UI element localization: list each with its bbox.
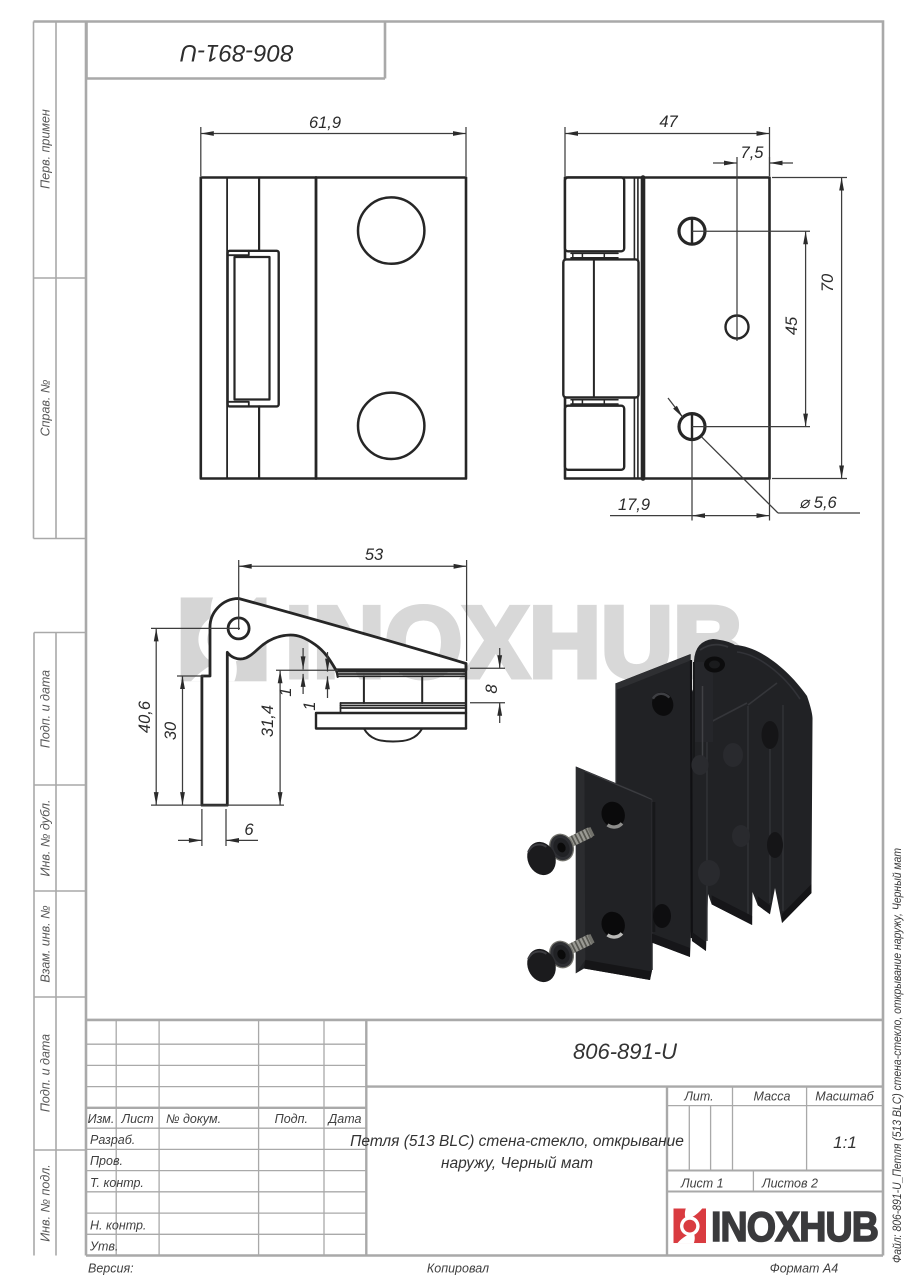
svg-text:47: 47 (659, 113, 678, 131)
svg-text:Масштаб: Масштаб (815, 1090, 874, 1104)
svg-text:8: 8 (483, 684, 501, 694)
svg-text:Инв. № дубл.: Инв. № дубл. (39, 800, 53, 877)
svg-text:1:1: 1:1 (833, 1133, 857, 1152)
svg-text:31,4: 31,4 (259, 705, 277, 737)
svg-text:Подп. и дата: Подп. и дата (39, 1034, 53, 1112)
svg-text:1: 1 (277, 687, 295, 696)
svg-text:Версия:: Версия: (88, 1262, 134, 1276)
svg-text:Справ. №: Справ. № (39, 379, 53, 436)
svg-text:806-891-U: 806-891-U (573, 1039, 677, 1064)
svg-text:Петля (513 BLC) стена-стекло,: Петля (513 BLC) стена-стекло, открывание (350, 1133, 684, 1150)
svg-text:40,6: 40,6 (136, 700, 154, 733)
svg-text:70: 70 (819, 273, 837, 292)
svg-text:Лист 1: Лист 1 (680, 1177, 724, 1191)
svg-text:Н. контр.: Н. контр. (90, 1219, 146, 1233)
svg-text:Т. контр.: Т. контр. (90, 1176, 144, 1190)
svg-text:Подп.: Подп. (275, 1112, 308, 1126)
svg-text:№ докум.: № докум. (166, 1112, 221, 1126)
svg-text:Листов 2: Листов 2 (761, 1177, 818, 1191)
svg-text:Перв. примен: Перв. примен (39, 109, 53, 189)
svg-text:Взам. инв. №: Взам. инв. № (39, 905, 53, 983)
svg-text:Пров.: Пров. (90, 1154, 123, 1168)
svg-text:7,5: 7,5 (741, 144, 765, 162)
svg-text:Лист: Лист (121, 1112, 154, 1126)
svg-text:53: 53 (365, 546, 384, 564)
svg-text:Подп. и дата: Подп. и дата (39, 670, 53, 748)
svg-text:Дата: Дата (327, 1112, 362, 1126)
svg-text:Утв.: Утв. (89, 1240, 118, 1254)
svg-text:61,9: 61,9 (309, 114, 341, 132)
svg-text:Файл: 806-891-U_Петля (513 BLC: Файл: 806-891-U_Петля (513 BLC) стена-ст… (890, 848, 904, 1263)
svg-text:45: 45 (783, 316, 801, 335)
svg-text:наружу, Черный мат: наружу, Черный мат (441, 1155, 593, 1172)
svg-text:Инв. № подл.: Инв. № подл. (39, 1164, 53, 1242)
svg-text:INOXHUB: INOXHUB (711, 1203, 878, 1250)
svg-text:17,9: 17,9 (618, 496, 650, 514)
svg-text:1: 1 (301, 701, 319, 710)
svg-text:6: 6 (244, 821, 254, 839)
svg-text:⌀ 5,6: ⌀ 5,6 (799, 494, 837, 512)
svg-text:Масса: Масса (754, 1090, 791, 1104)
svg-text:Формат А4: Формат А4 (770, 1262, 838, 1276)
svg-text:Разраб.: Разраб. (90, 1133, 135, 1147)
svg-text:806-891-U: 806-891-U (180, 39, 294, 66)
svg-text:Копировал: Копировал (427, 1262, 489, 1276)
svg-text:30: 30 (162, 721, 180, 740)
svg-text:Изм.: Изм. (88, 1112, 115, 1126)
svg-text:Лит.: Лит. (683, 1090, 713, 1104)
